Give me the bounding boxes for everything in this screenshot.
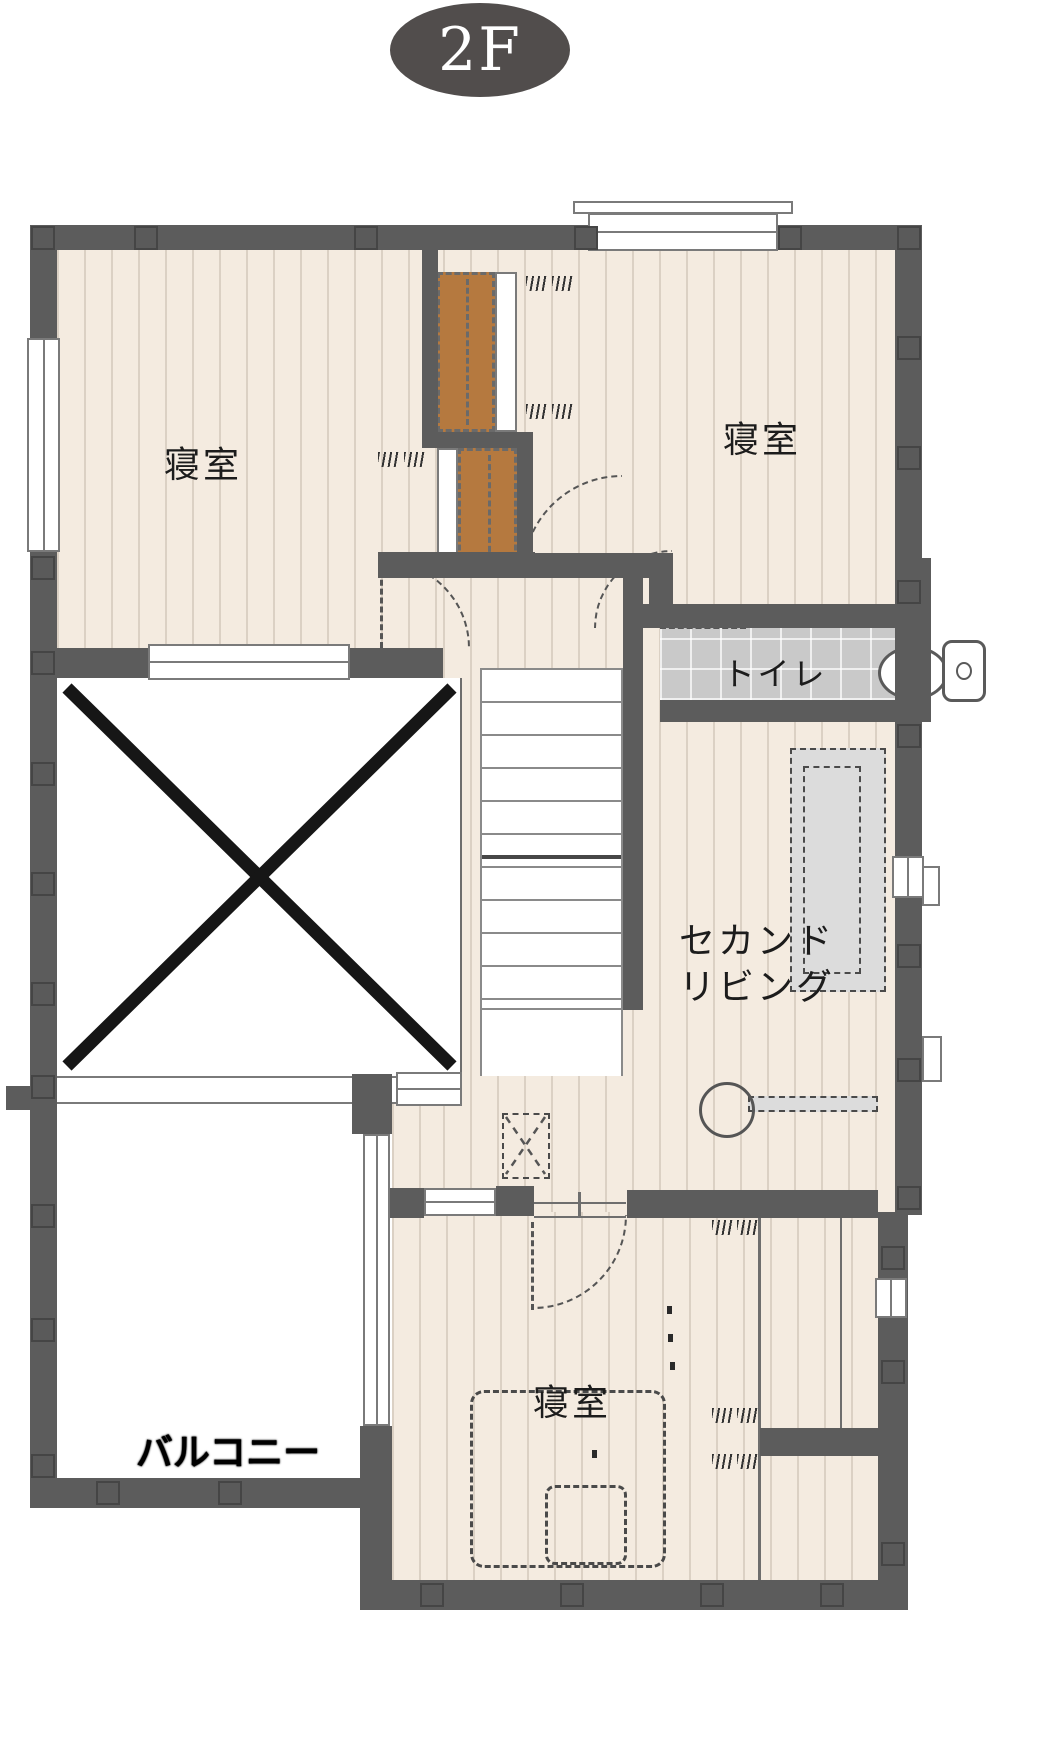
wall-pillar (31, 1318, 55, 1342)
wall-living-bedroom-stub (388, 1188, 424, 1218)
door-pillar (496, 1186, 534, 1216)
pipe-space-cross-icon (504, 1115, 547, 1176)
second-living-label-line1: セカンド (679, 912, 835, 964)
shelf-strip (748, 1096, 878, 1112)
balcony-divider-pillar (352, 1074, 392, 1134)
closet-lower-door-track (437, 448, 458, 568)
round-stool (699, 1082, 755, 1138)
wall-pillar (31, 982, 55, 1006)
window-right-bottom (875, 1278, 907, 1318)
folding-door-icon (526, 404, 548, 419)
second-living-label-line2: リビング (679, 958, 835, 1010)
void-cross-icon (57, 678, 462, 1076)
void-right-line (460, 678, 462, 1076)
closet-block-bottom-right (760, 1428, 878, 1456)
stair-landing (480, 1010, 623, 1076)
folding-door-icon (552, 276, 574, 291)
window-left-bedroom (27, 338, 60, 552)
window-bedroomA-void (148, 644, 350, 680)
wall-pillar (700, 1583, 724, 1607)
wall-pillar (897, 446, 921, 470)
bed-pillow-outline (545, 1485, 627, 1565)
floor-badge: 2F (390, 3, 570, 97)
wall-pillar (897, 944, 921, 968)
wall-pillar (354, 226, 378, 250)
closet-track-line (840, 1212, 842, 1428)
folding-door-icon (526, 276, 548, 291)
window-bedroom-corner (424, 1188, 496, 1216)
folding-door-icon (737, 1454, 759, 1469)
void-area (57, 678, 462, 1076)
wall-pillar (560, 1583, 584, 1607)
dashed-dot (667, 1306, 672, 1314)
wall-closet-divider (422, 432, 533, 448)
wall-pillar (31, 1454, 55, 1478)
wall-pillar (31, 651, 55, 675)
wall-pillar (134, 226, 158, 250)
wall-bedroomA-right (422, 250, 438, 448)
exterior-stub (6, 1086, 32, 1110)
wall-pillar (897, 724, 921, 748)
wall-pillar (31, 1204, 55, 1228)
window-right-living (892, 856, 924, 898)
door-jamb-tick (578, 1192, 581, 1218)
wall-pillar (420, 1583, 444, 1607)
wall-pillar (897, 1186, 921, 1210)
bedroom-topleft-label: 寝室 (164, 436, 242, 488)
bedroom-bottom-label: 寝室 (533, 1374, 611, 1426)
wall-toilet-top (640, 604, 895, 628)
wall-pillar (897, 580, 921, 604)
wall-pillar (31, 1075, 55, 1099)
closet-upper-door-track (495, 272, 517, 432)
closet-upper (437, 272, 495, 432)
wall-pillar (820, 1583, 844, 1607)
wall-pillar (881, 1542, 905, 1566)
folding-door-icon (552, 404, 574, 419)
wall-pillar (881, 1246, 905, 1270)
window-balcony-divider (363, 1134, 390, 1426)
wall-pillar (778, 226, 802, 250)
floor-badge-label: 2F (438, 15, 522, 85)
shutter-box-right2 (922, 1036, 942, 1082)
folding-door-icon (378, 452, 400, 467)
window-void-band (396, 1072, 462, 1106)
closet-lower (458, 448, 517, 568)
wall-pillar (897, 336, 921, 360)
wall-stairs-right (623, 578, 643, 1010)
wall-pillar (897, 226, 921, 250)
dashed-dot (592, 1450, 597, 1458)
door-arc-bedroom-bottom (533, 1215, 627, 1309)
folding-door-icon (404, 452, 426, 467)
staircase (480, 668, 623, 1010)
wall-pillar (218, 1481, 242, 1505)
pipe-space-box (502, 1113, 550, 1179)
wall-pillar (31, 872, 55, 896)
partition-line (758, 1212, 761, 1580)
window-top (588, 213, 778, 251)
balcony-label: バルコニー (136, 1422, 320, 1476)
wall-closet-lower-bottom (378, 552, 535, 578)
toilet-label: トイレ (722, 649, 827, 695)
wall-pillar (881, 1360, 905, 1384)
toilet-handle-icon (956, 662, 972, 680)
stair-break-line (482, 855, 621, 859)
floor-plan-page: 寝室 寝室 トイレ セカンド リビング 寝室 バルコニー 2F (0, 0, 1039, 1737)
dashed-dot (670, 1362, 675, 1370)
folding-door-icon (737, 1408, 759, 1423)
wall-pillar (31, 762, 55, 786)
wall-pillar (574, 226, 598, 250)
wall-pillar (31, 226, 55, 250)
wall-living-bedroom (627, 1190, 878, 1218)
bedroom-topright-label: 寝室 (723, 411, 801, 463)
door-leaf-bedroom-bottom (531, 1222, 534, 1310)
folding-door-icon (712, 1454, 734, 1469)
folding-door-icon (737, 1220, 759, 1235)
dashed-dot (668, 1334, 673, 1342)
folding-door-icon (712, 1408, 734, 1423)
wall-pillar (96, 1481, 120, 1505)
balcony-divider-lower (360, 1426, 392, 1582)
wall-balcony-bottom (30, 1478, 370, 1508)
wall-toilet-bottom (660, 700, 895, 722)
shutter-box-right (922, 866, 940, 906)
wall-pillar (897, 1058, 921, 1082)
folding-door-icon (712, 1220, 734, 1235)
wall-pillar (31, 556, 55, 580)
